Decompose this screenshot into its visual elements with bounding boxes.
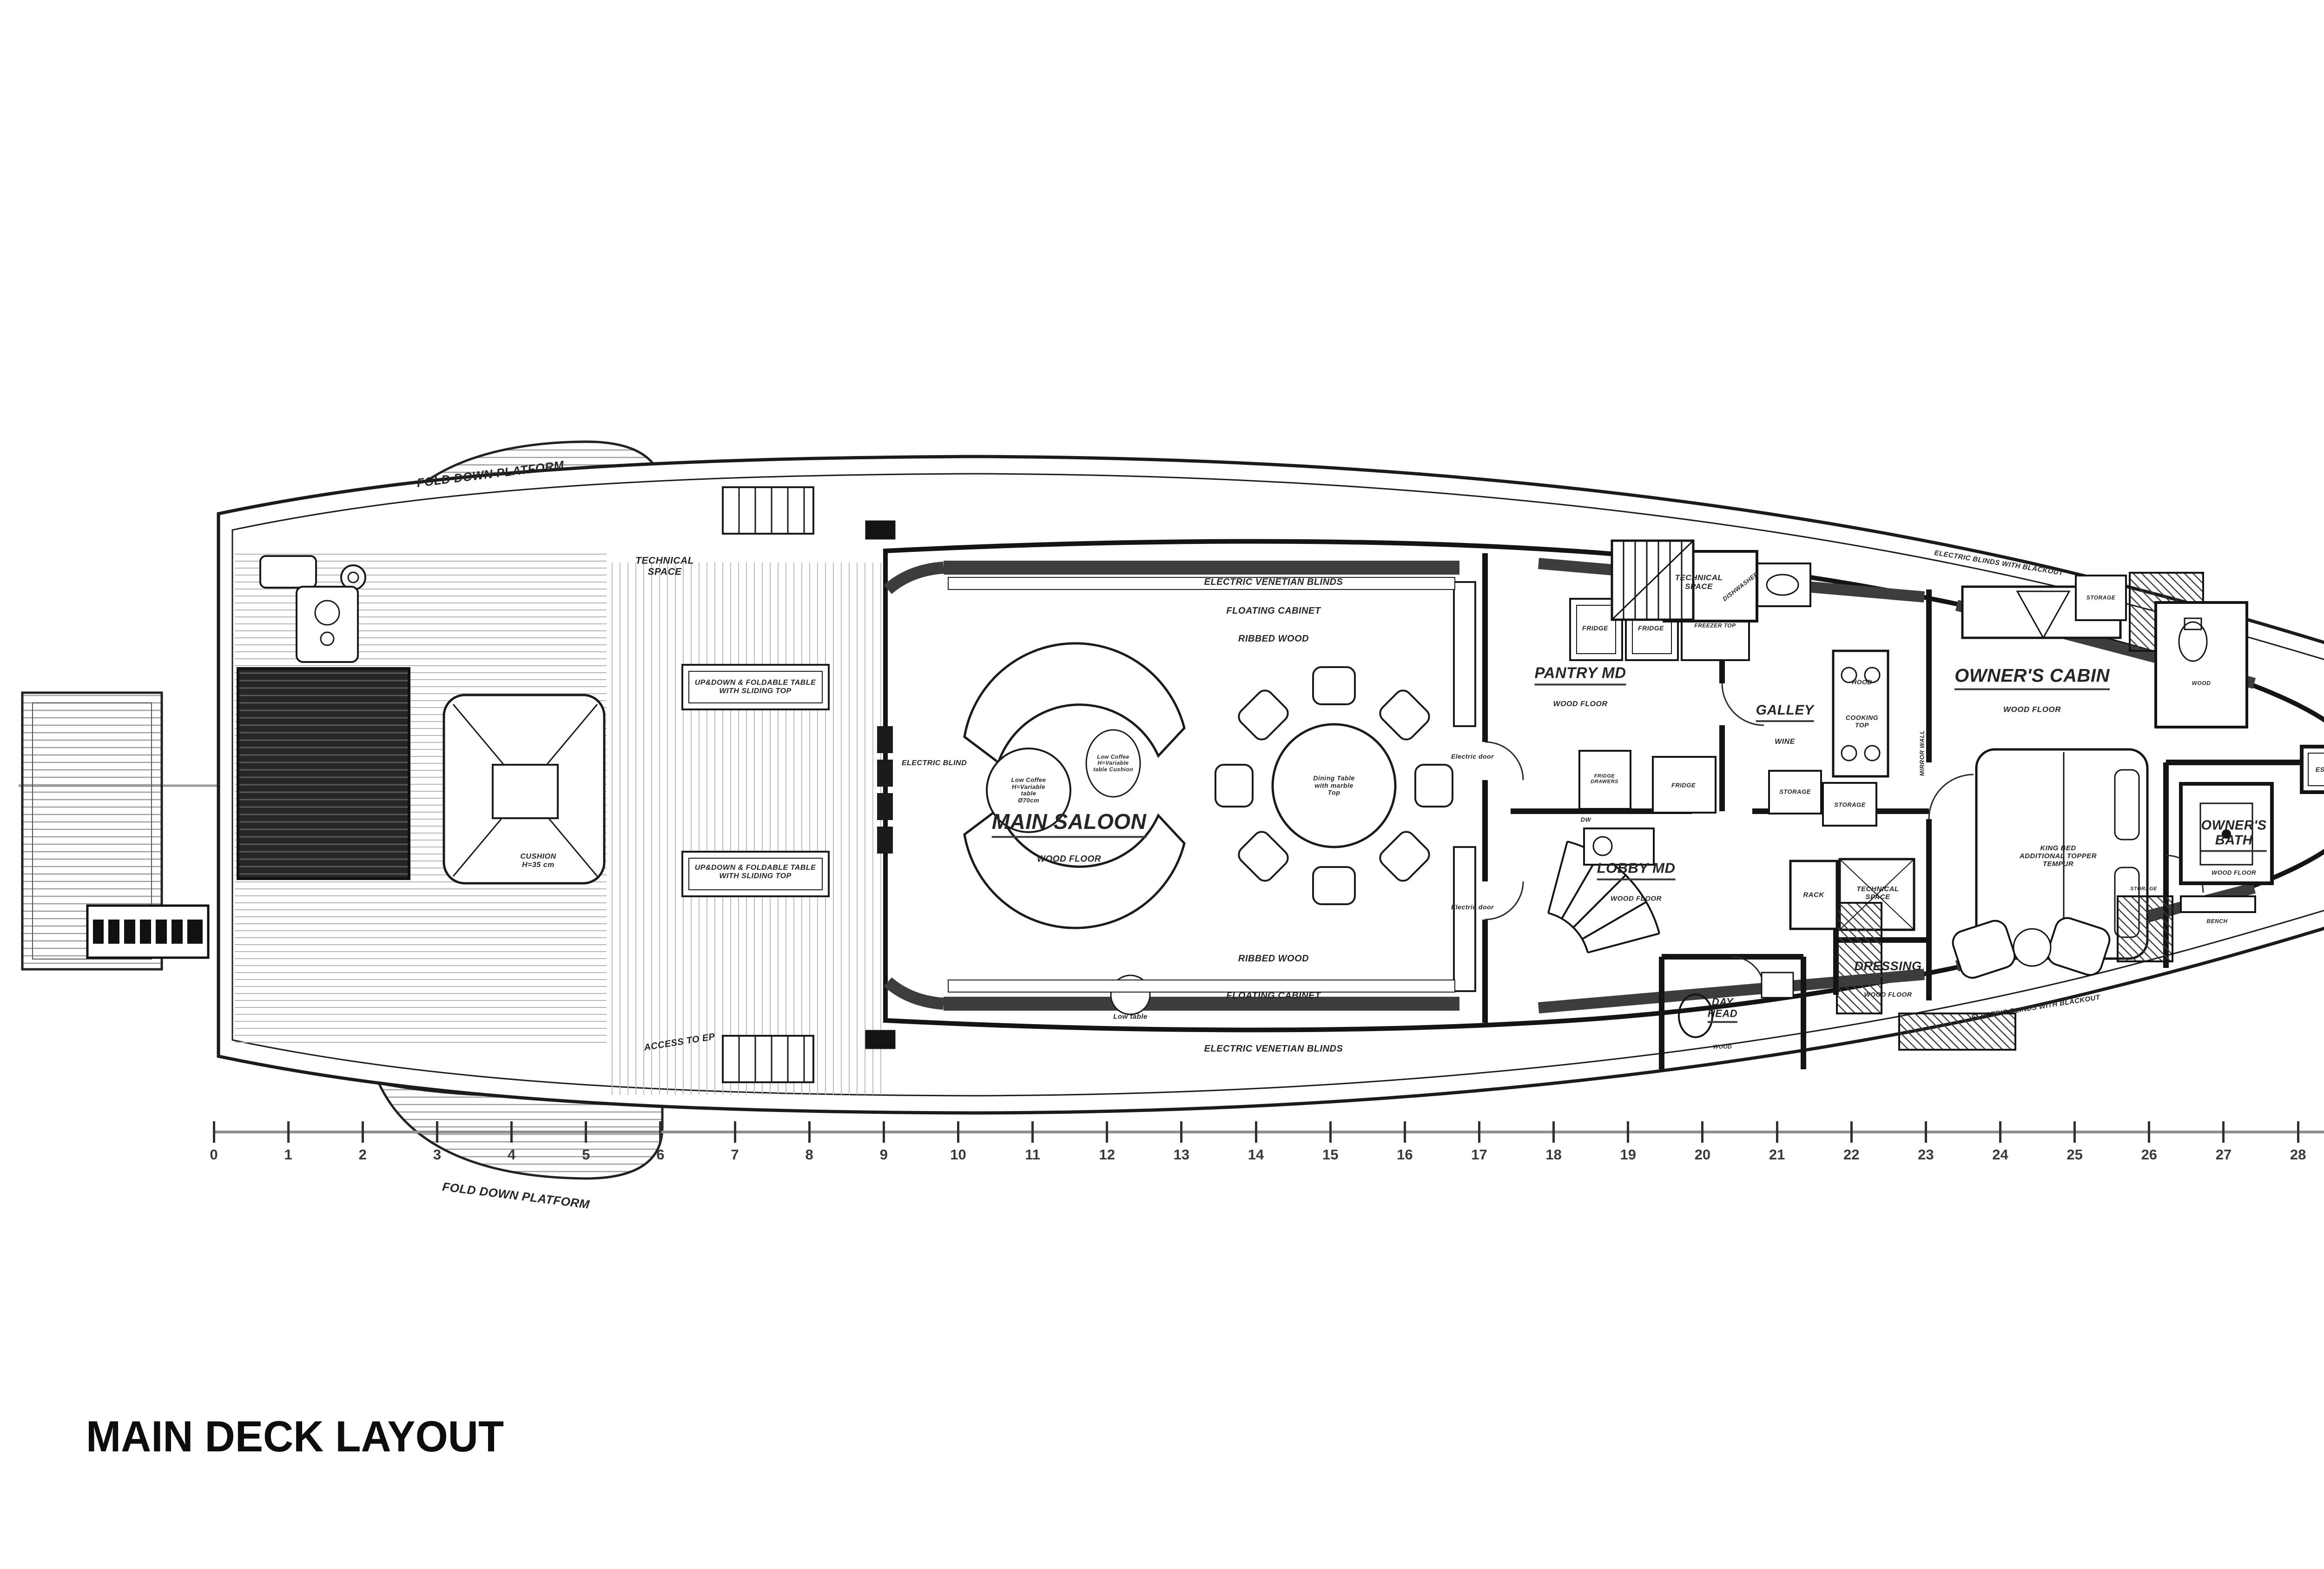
ruler-tick xyxy=(2297,1121,2299,1143)
ruler-number: 3 xyxy=(418,1146,456,1163)
ruler-tick xyxy=(1031,1121,1034,1143)
ruler-number: 13 xyxy=(1163,1146,1200,1163)
ruler-tick xyxy=(883,1121,885,1143)
ruler-tick xyxy=(1627,1121,1629,1143)
ruler-tick xyxy=(585,1121,587,1143)
ruler-number: 6 xyxy=(642,1146,679,1163)
ruler-tick xyxy=(1404,1121,1406,1143)
ruler-number: 4 xyxy=(493,1146,530,1163)
page-title: MAIN DECK LAYOUT xyxy=(86,1411,504,1462)
ruler-number: 25 xyxy=(2056,1146,2093,1163)
ruler-number: 15 xyxy=(1312,1146,1349,1163)
ruler-tick xyxy=(436,1121,438,1143)
ruler-tick xyxy=(1106,1121,1108,1143)
ruler-tick xyxy=(1255,1121,1257,1143)
ruler-tick xyxy=(659,1121,661,1143)
ruler-number: 27 xyxy=(2205,1146,2242,1163)
ruler-tick xyxy=(1329,1121,1332,1143)
ruler-tick xyxy=(734,1121,736,1143)
ruler-tick xyxy=(1999,1121,2001,1143)
ruler-number: 24 xyxy=(1982,1146,2019,1163)
ruler-tick xyxy=(2222,1121,2225,1143)
ruler-line xyxy=(214,1131,2324,1133)
ruler-number: 0 xyxy=(195,1146,232,1163)
ruler-tick xyxy=(2073,1121,2076,1143)
ruler-number: 10 xyxy=(939,1146,977,1163)
ruler-tick xyxy=(1552,1121,1555,1143)
ruler-number: 1 xyxy=(270,1146,307,1163)
ruler-number: 23 xyxy=(1907,1146,1944,1163)
ruler-number: 21 xyxy=(1758,1146,1796,1163)
ruler-number: 9 xyxy=(865,1146,902,1163)
ruler-number: 14 xyxy=(1237,1146,1274,1163)
ruler-tick xyxy=(510,1121,513,1143)
ruler-number: 5 xyxy=(568,1146,605,1163)
ruler-tick xyxy=(2148,1121,2150,1143)
ruler-number: 28 xyxy=(2279,1146,2317,1163)
ruler-tick xyxy=(1850,1121,1853,1143)
ruler-tick xyxy=(213,1121,215,1143)
ruler-number: 8 xyxy=(791,1146,828,1163)
ruler-number: 17 xyxy=(1461,1146,1498,1163)
ruler-number: 12 xyxy=(1089,1146,1126,1163)
scale-ruler: 0123456789101112131415161718192021222324… xyxy=(0,0,2324,1569)
ruler-number: 20 xyxy=(1684,1146,1721,1163)
ruler-tick xyxy=(287,1121,290,1143)
ruler-number: 19 xyxy=(1610,1146,1647,1163)
ruler-number: 22 xyxy=(1833,1146,1870,1163)
ruler-tick xyxy=(1925,1121,1927,1143)
ruler-number: 16 xyxy=(1386,1146,1423,1163)
ruler-tick xyxy=(957,1121,959,1143)
ruler-tick xyxy=(362,1121,364,1143)
ruler-tick xyxy=(1701,1121,1703,1143)
ruler-number: 2 xyxy=(344,1146,381,1163)
ruler-number: 26 xyxy=(2131,1146,2168,1163)
ruler-tick xyxy=(1180,1121,1182,1143)
ruler-number: 18 xyxy=(1535,1146,1572,1163)
ruler-number: 7 xyxy=(716,1146,753,1163)
ruler-number: 11 xyxy=(1014,1146,1051,1163)
ruler-tick xyxy=(1478,1121,1480,1143)
ruler-tick xyxy=(808,1121,811,1143)
ruler-tick xyxy=(1776,1121,1778,1143)
deck-plan-page: FOLD DOWN PLATFORMTECHNICALSPACEUP&DOWN … xyxy=(0,0,2324,1569)
